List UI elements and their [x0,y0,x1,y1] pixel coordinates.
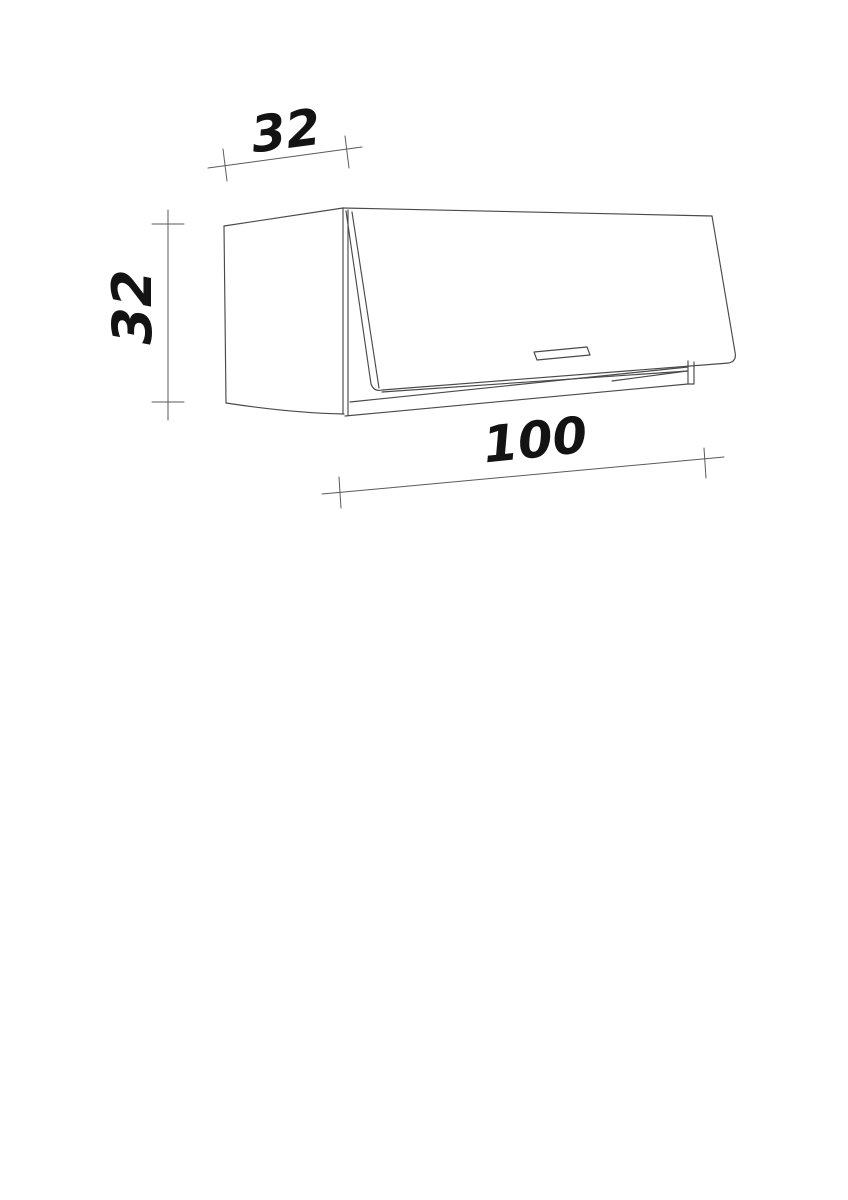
cabinet-top-edge [343,208,712,216]
diagram-canvas: 32 32 100 [0,0,848,1200]
depth-dimension-tick-right [345,136,349,168]
width-dimension-tick-right [704,448,706,478]
cabinet-flap-door [346,211,735,390]
cabinet-dimension-drawing: 32 32 100 [0,0,848,1200]
dimension-lines [152,136,724,508]
height-dimension-label: 32 [101,269,164,344]
cabinet-drawing [224,208,735,416]
depth-dimension-label: 32 [247,98,324,165]
cabinet-side-panel [224,208,348,415]
door-handle [534,347,590,360]
width-dimension-label: 100 [480,406,590,475]
dimension-labels: 32 32 100 [101,98,590,475]
